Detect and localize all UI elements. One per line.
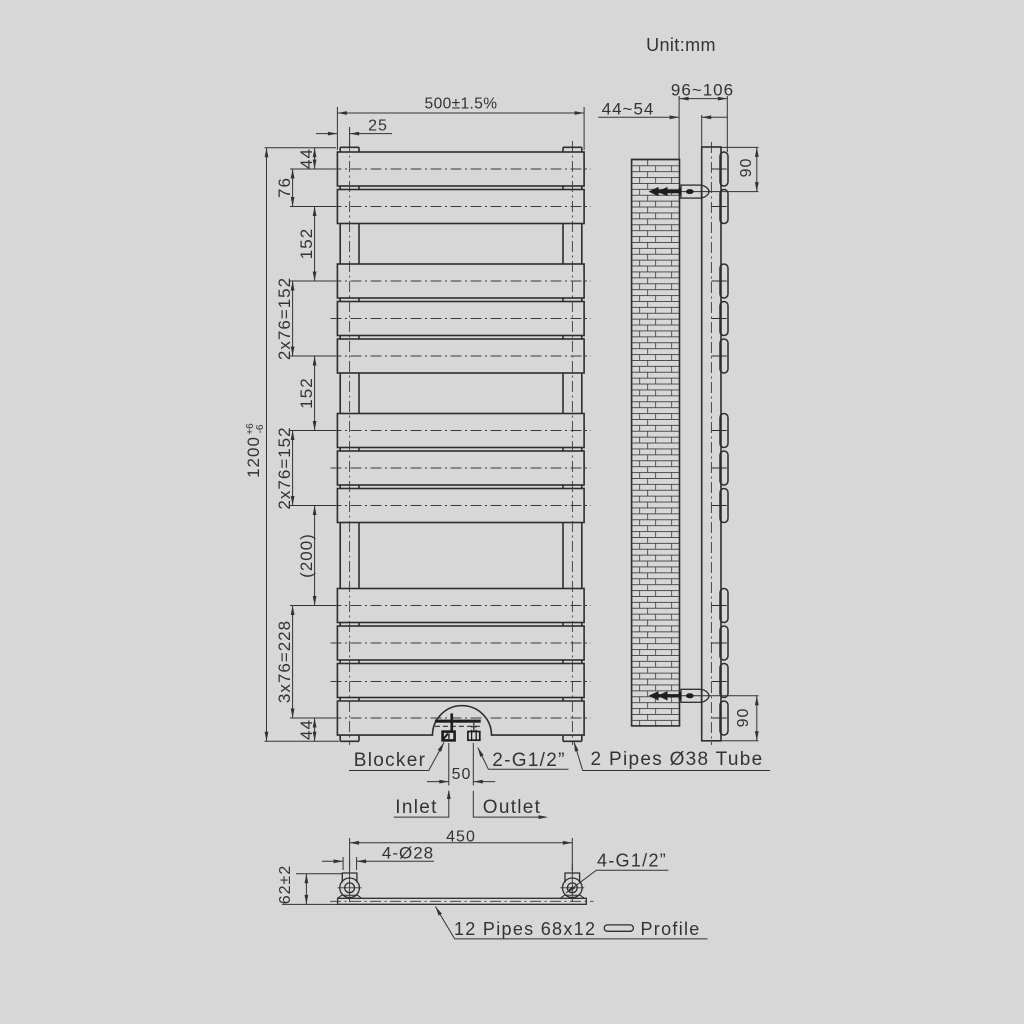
svg-text:62±2: 62±2: [277, 865, 294, 904]
svg-text:4-G1/2”: 4-G1/2”: [597, 851, 667, 871]
svg-text:Inlet: Inlet: [395, 797, 437, 818]
svg-text:500±1.5%: 500±1.5%: [425, 96, 498, 113]
svg-text:3x76=228: 3x76=228: [275, 620, 294, 703]
svg-text:90: 90: [738, 158, 755, 178]
svg-text:2x76=152: 2x76=152: [275, 426, 294, 509]
svg-text:450: 450: [446, 829, 476, 846]
svg-text:152: 152: [297, 377, 316, 408]
svg-text:44~54: 44~54: [602, 100, 655, 119]
svg-text:12 Pipes 68x12: 12 Pipes 68x12: [454, 919, 596, 939]
svg-text:Profile: Profile: [641, 919, 701, 939]
svg-text:-6: -6: [255, 424, 266, 433]
svg-text:(200): (200): [297, 533, 316, 578]
svg-text:50: 50: [452, 766, 472, 783]
svg-text:4-Ø28: 4-Ø28: [382, 844, 434, 863]
svg-text:44: 44: [297, 148, 316, 169]
svg-text:96~106: 96~106: [671, 81, 734, 100]
svg-text:Unit:mm: Unit:mm: [646, 35, 716, 55]
svg-text:44: 44: [297, 719, 316, 740]
svg-text:25: 25: [368, 118, 388, 135]
svg-text:2x76=152: 2x76=152: [275, 277, 294, 360]
svg-text:76: 76: [275, 177, 294, 198]
svg-text:Outlet: Outlet: [483, 797, 542, 818]
svg-text:1200: 1200: [244, 436, 263, 478]
svg-text:90: 90: [735, 708, 752, 728]
svg-text:2 Pipes Ø38 Tube: 2 Pipes Ø38 Tube: [591, 749, 764, 770]
svg-text:2-G1/2”: 2-G1/2”: [492, 750, 566, 771]
svg-text:Blocker: Blocker: [354, 750, 426, 771]
svg-text:152: 152: [297, 228, 316, 259]
